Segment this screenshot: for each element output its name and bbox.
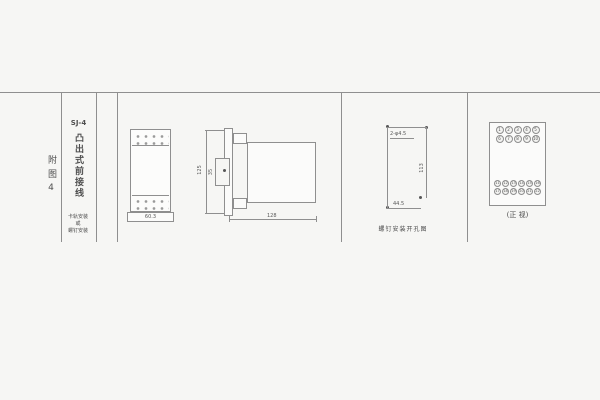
height-dimension-line [206, 131, 207, 213]
model-label: SJ-4 [61, 119, 96, 127]
relay-case-outline [130, 129, 171, 212]
depth-tick-right [316, 216, 317, 222]
bottom-connector-step [233, 198, 247, 209]
terminal-row: 12345 [489, 126, 546, 134]
terminal-layout-drawing: 12345678910 111213141516171819202122 (正 … [489, 122, 546, 224]
terminal-22: 22 [534, 188, 541, 195]
terminal-view-caption: (正 视) [489, 210, 546, 220]
terminal-10: 10 [532, 135, 540, 143]
width-dimension: 60.3 [127, 214, 174, 220]
clip-dimension: 35 [208, 169, 214, 175]
clip-screw-dot [223, 169, 226, 172]
hole-spacing-vertical: 113 [419, 163, 425, 173]
relay-body-outline [247, 142, 316, 203]
terminal-strip-top [132, 131, 169, 146]
top-connector-step [233, 133, 247, 144]
terminal-11: 11 [494, 180, 501, 187]
terminal-9: 9 [523, 135, 531, 143]
table-vertical-rule-5 [467, 92, 468, 242]
drilling-diagram-caption: 螺钉安装开孔图 [376, 224, 430, 233]
hole-spacing-horizontal: 44.5 [393, 201, 404, 207]
table-vertical-rule-4 [341, 92, 342, 242]
terminal-row: 678910 [489, 135, 546, 143]
mounting-note-line2: 或 [59, 221, 97, 228]
bottom-dimension-line [387, 208, 421, 209]
terminal-2: 2 [505, 126, 513, 134]
depth-dimension-line [229, 219, 317, 220]
drawing-title-vertical: 凸出式前接线 [72, 133, 85, 213]
mounting-note: 卡轨安装 或 螺钉安装 [59, 214, 97, 235]
depth-dimension: 128 [267, 213, 277, 219]
terminal-row: 111213141516 [489, 180, 546, 187]
table-vertical-rule-3 [117, 92, 118, 242]
terminal-3: 3 [514, 126, 522, 134]
height-dimension: 125 [197, 165, 203, 175]
terminal-19: 19 [510, 188, 517, 195]
terminal-17: 17 [494, 188, 501, 195]
left-dimension-line [387, 127, 388, 208]
din-rail-clip [215, 158, 230, 186]
terminal-18: 18 [502, 188, 509, 195]
terminal-16: 16 [534, 180, 541, 187]
terminal-15: 15 [526, 180, 533, 187]
hole-size-note: 2-φ4.5 [390, 131, 414, 139]
depth-tick-left [229, 216, 230, 222]
terminal-12: 12 [502, 180, 509, 187]
drawing-sheet: 附图4 SJ-4 凸出式前接线 卡轨安装 或 螺钉安装 60.3 125 35 … [0, 0, 600, 400]
mounting-note-line1: 卡轨安装 [59, 214, 97, 221]
right-dimension-line [426, 128, 427, 198]
table-top-rule [0, 92, 600, 93]
figure-number-label: 附图4 [45, 155, 58, 221]
terminal-block-top: 12345678910 [489, 126, 546, 144]
mounting-note-line3: 螺钉安装 [59, 228, 97, 235]
terminal-5: 5 [532, 126, 540, 134]
terminal-6: 6 [496, 135, 504, 143]
terminal-row: 171819202122 [489, 188, 546, 195]
drilling-diagram: 2-φ4.5 113 44.5 螺钉安装开孔图 [384, 124, 448, 236]
side-view-drawing: 125 35 128 [196, 124, 336, 229]
terminal-20: 20 [518, 188, 525, 195]
mounting-hole-bottom-right [419, 196, 422, 199]
terminal-strip-bottom [132, 195, 169, 210]
top-dimension-line [387, 127, 427, 128]
front-view-drawing: 60.3 [127, 128, 174, 224]
terminal-8: 8 [514, 135, 522, 143]
terminal-1: 1 [496, 126, 504, 134]
terminal-4: 4 [523, 126, 531, 134]
terminal-14: 14 [518, 180, 525, 187]
terminal-13: 13 [510, 180, 517, 187]
terminal-block-bottom: 111213141516171819202122 [489, 180, 546, 196]
terminal-21: 21 [526, 188, 533, 195]
terminal-7: 7 [505, 135, 513, 143]
